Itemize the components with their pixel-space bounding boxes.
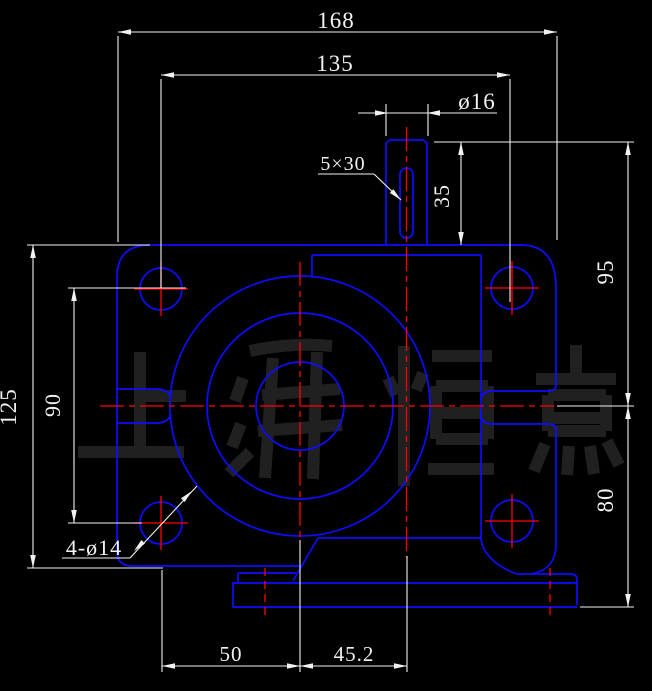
label-45_2: 45.2 (334, 642, 375, 666)
dimension-lines (27, 32, 634, 672)
inner-top-line (312, 255, 481, 277)
rib-diagonal (293, 538, 318, 581)
label-125: 125 (0, 388, 21, 426)
base-plate (233, 583, 577, 607)
label-35: 35 (429, 184, 454, 208)
label-dia16: ø16 (458, 89, 496, 114)
hole-cross-bottom-right (485, 494, 539, 548)
cad-drawing-canvas: 168135ø165×30359580125904-ø145045.2 (0, 0, 652, 691)
label-5x30: 5×30 (320, 153, 365, 175)
watermark-text (78, 345, 619, 486)
label-80: 80 (593, 488, 618, 513)
right-ear-bottom-curve (531, 544, 556, 574)
watermark-char-3 (388, 346, 494, 486)
pad-top-right (517, 574, 577, 605)
label-90: 90 (40, 393, 65, 417)
pad-top-left (238, 573, 296, 583)
hole-cross-top-right (485, 261, 539, 315)
plate-top-right-fillet (521, 245, 556, 288)
label-168: 168 (317, 8, 355, 33)
label-4dia14: 4-ø14 (66, 535, 122, 560)
label-50: 50 (220, 642, 243, 666)
part-outline (117, 140, 577, 607)
dimension-labels: 168135ø165×30359580125904-ø145045.2 (0, 8, 618, 666)
watermark-char-4 (534, 345, 619, 475)
label-135: 135 (316, 51, 354, 76)
label-95: 95 (593, 260, 618, 285)
